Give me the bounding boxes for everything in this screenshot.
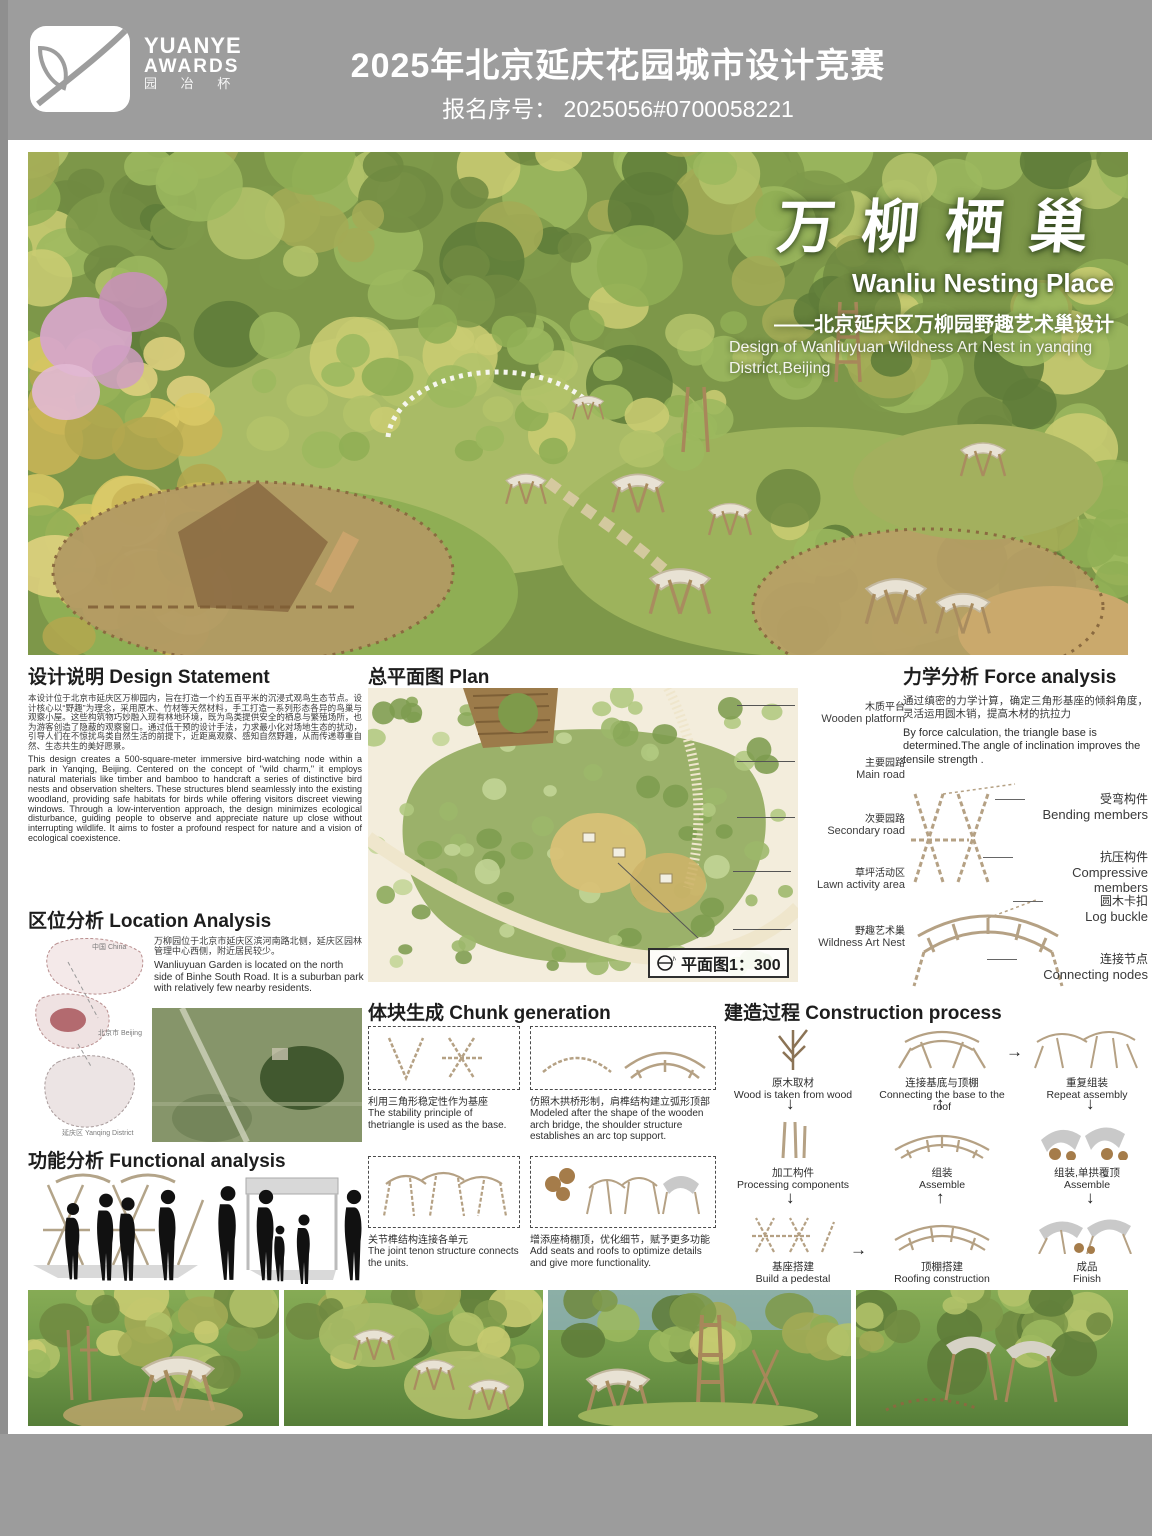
- gray-roof-figure: [1027, 1120, 1147, 1160]
- arch-panel-figure: [887, 1120, 997, 1160]
- arrow-down-icon: ↓: [786, 1094, 795, 1114]
- construction-heading: 建造过程 Construction process: [724, 998, 1152, 1025]
- functional-heading: 功能分析 Functional analysis: [28, 1146, 362, 1173]
- plan-scale-box: N 平面图1：300: [648, 948, 789, 978]
- location-heading: 区位分析 Location Analysis: [28, 906, 362, 933]
- force-heading: 力学分析 Force analysis: [903, 662, 1148, 689]
- arrow-down-icon: ↓: [786, 1188, 795, 1208]
- construction-en: Finish: [1022, 1274, 1152, 1286]
- construction-zh: 组装: [872, 1165, 1012, 1180]
- joint-units-diagram: [374, 1162, 514, 1222]
- people-silhouettes: [65, 1186, 361, 1284]
- construction-en: Roofing construction: [872, 1274, 1012, 1286]
- chunk-step-4: 增添座椅棚顶，优化细节，赋予更多功能 Add seats and roofs t…: [530, 1156, 716, 1269]
- construction-step-assemble: 组装 Assemble: [872, 1120, 1012, 1192]
- construction-zh: 加工构件: [724, 1165, 862, 1180]
- plan-label-secondary-road: 次要园路 Secondary road: [799, 810, 905, 837]
- force-analysis-section: 力学分析 Force analysis 通过缜密的力学计算，确定三角形基座的倾斜…: [903, 662, 1148, 998]
- construction-zh: 重复组装: [1022, 1075, 1152, 1090]
- plan-label-zh: 主要园路: [799, 754, 905, 769]
- force-label-en: Compressive members: [1018, 865, 1148, 895]
- render-photo-3: [548, 1290, 851, 1426]
- logo-line2: AWARDS: [144, 57, 242, 77]
- hero-subtitle-en: Design of Wanliuyuan Wildness Art Nest i…: [729, 338, 1114, 380]
- plan-label-main-road: 主要园路 Main road: [799, 754, 905, 781]
- competition-title: 2025年北京延庆花园城市设计竞赛: [268, 38, 968, 87]
- map-label-yanqing: 延庆区 Yanqing District: [62, 1128, 133, 1138]
- location-en: Wanliuyuan Garden is located on the nort…: [154, 960, 364, 995]
- construction-process-section: 建造过程 Construction process 原木取材 Wood is t…: [724, 998, 1152, 1290]
- svg-text:N: N: [673, 957, 676, 963]
- poster-page: { "header": { "logo": { "line1": "YUANYE…: [0, 0, 1152, 1536]
- plan-label-zh: 次要园路: [799, 810, 905, 825]
- yuanye-awards-logo: [30, 26, 130, 112]
- force-label-en: Bending members: [1030, 807, 1148, 822]
- arch-bridge-diagram: [537, 1032, 709, 1084]
- finished-tent-figure: [1027, 1214, 1147, 1254]
- plan-label-zh: 草坪活动区: [795, 864, 905, 879]
- triangle-base-diagram: [374, 1032, 514, 1084]
- construction-step-roofing: 顶棚搭建 Roofing construction: [872, 1214, 1012, 1286]
- map-label-beijing: 北京市 Beijing: [98, 1028, 142, 1038]
- force-en: By force calculation, the triangle base …: [903, 727, 1148, 767]
- satellite-image: [152, 1008, 362, 1142]
- arrow-up-icon: ↑: [936, 1094, 945, 1114]
- functional-analysis-section: 功能分析 Functional analysis: [28, 1146, 362, 1292]
- plan-label-lawn-area: 草坪活动区 Lawn activity area: [795, 864, 905, 891]
- hero-aerial-render: 万柳栖巢 Wanliu Nesting Place ——北京延庆区万柳园野趣艺术…: [28, 152, 1128, 655]
- arrow-right-icon: →: [1006, 1042, 1023, 1062]
- chunk-step-1: 利用三角形稳定性作为基座 The stability principle of …: [368, 1026, 520, 1131]
- force-label-en: Connecting nodes: [1022, 967, 1148, 982]
- plan-scale-text: 平面图1：300: [681, 951, 781, 975]
- chunk-en: Modeled after the shape of the wooden ar…: [530, 1108, 716, 1143]
- construction-zh: 顶棚搭建: [872, 1259, 1012, 1274]
- construction-step-canopy: 组装,单拱覆顶 Assemble: [1022, 1120, 1152, 1192]
- construction-zh: 基座搭建: [724, 1259, 862, 1274]
- render-photo-4: [856, 1290, 1128, 1426]
- force-label-log-buckle: 圆木卡扣 Log buckle: [1048, 892, 1148, 924]
- double-tent-figure: [1027, 1024, 1147, 1070]
- force-label-connecting: 连接节点 Connecting nodes: [1022, 950, 1148, 982]
- force-label-bending: 受弯构件 Bending members: [1030, 790, 1148, 822]
- trestle-figure: [748, 1214, 838, 1254]
- chunk-zh: 仿照木拱桥形制，肩榫结构建立弧形顶部: [530, 1093, 716, 1108]
- render-photo-2: [284, 1290, 543, 1426]
- chunk-heading: 体块生成 Chunk generation: [368, 998, 716, 1025]
- left-edge-strip: [0, 0, 8, 1536]
- chunk-en: The joint tenon structure connects the u…: [368, 1246, 520, 1269]
- design-statement-section: 设计说明 Design Statement 本设计位于北京市延庆区万柳园内，旨在…: [28, 662, 362, 844]
- chunk-zh: 关节榫结构连接各单元: [368, 1231, 520, 1246]
- construction-step-repeat: 重复组装 Repeat assembly: [1022, 1024, 1152, 1102]
- force-label-zh: 连接节点: [1022, 950, 1148, 967]
- force-label-en: Log buckle: [1048, 909, 1148, 924]
- registration-number: 报名序号： 2025056#0700058221: [268, 90, 968, 124]
- plan-label-en: Secondary road: [799, 825, 905, 837]
- plan-section: 总平面图 Plan 木质平台 Wooden platform 主要园路 Main…: [368, 662, 908, 992]
- left-play-circle: [53, 482, 453, 655]
- arrow-down-icon: ↓: [1086, 1094, 1095, 1114]
- chunk-step-3: 关节榫结构连接各单元 The joint tenon structure con…: [368, 1156, 520, 1269]
- force-zh: 通过缜密的力学计算，确定三角形基座的倾斜角度，灵活运用圆木销，提高木材的抗拉力: [903, 695, 1148, 721]
- north-arrow-icon: N: [656, 953, 676, 973]
- logo-line1: YUANYE: [144, 34, 242, 57]
- force-label-compressive: 抗压构件 Compressive members: [1018, 848, 1148, 895]
- map-label-china: 中国 China: [92, 942, 126, 952]
- branch-figure: [763, 1024, 823, 1070]
- functional-diagram: [28, 1170, 362, 1290]
- hero-title-en: Wanliu Nesting Place: [852, 268, 1114, 299]
- construction-zh: 成品: [1022, 1259, 1152, 1274]
- plan-label-en: Wildness Art Nest: [795, 937, 905, 949]
- arrow-down-icon: ↓: [1086, 1188, 1095, 1208]
- chunk-zh: 利用三角形稳定性作为基座: [368, 1093, 520, 1108]
- logo-wordmark: YUANYE AWARDS 园 冶 杯: [144, 34, 242, 91]
- plan-label-zh: 木质平台: [799, 698, 905, 713]
- chunk-step-2: 仿照木拱桥形制，肩榫结构建立弧形顶部 Modeled after the sha…: [530, 1026, 716, 1143]
- plan-label-en: Lawn activity area: [795, 879, 905, 891]
- plan-label-art-nest: 野趣艺术巢 Wildness Art Nest: [795, 922, 905, 949]
- plan-label-wooden-platform: 木质平台 Wooden platform: [799, 698, 905, 725]
- construction-zh: 组装,单拱覆顶: [1022, 1165, 1152, 1180]
- design-statement-heading: 设计说明 Design Statement: [28, 662, 362, 689]
- footer-band: [0, 1434, 1152, 1536]
- design-statement-zh: 本设计位于北京市延庆区万柳园内，旨在打造一个约五百平米的沉浸式观鸟生态节点。设计…: [28, 694, 362, 751]
- header-banner: YUANYE AWARDS 园 冶 杯 2025年北京延庆花园城市设计竞赛 报名…: [8, 0, 1152, 140]
- chunk-generation-section: 体块生成 Chunk generation 利用三角形稳定性作为基座 The s…: [368, 998, 716, 1288]
- plan-label-en: Wooden platform: [799, 713, 905, 725]
- construction-step-wood: 原木取材 Wood is taken from wood: [724, 1024, 862, 1102]
- arrow-up-icon: ↑: [936, 1188, 945, 1208]
- seats-roofs-diagram: [537, 1162, 709, 1222]
- chunk-en: The stability principle of thetriangle i…: [368, 1108, 520, 1131]
- sticks-figure: [763, 1120, 823, 1160]
- construction-step-finish: 成品 Finish: [1022, 1214, 1152, 1286]
- force-label-zh: 受弯构件: [1030, 790, 1148, 807]
- location-analysis-section: 区位分析 Location Analysis 中国 China 北京市 Beij…: [28, 906, 362, 1144]
- location-zh: 万柳园位于北京市延庆区滨河南路北侧，延庆区园林管理中心西侧，附近居民较少。: [154, 936, 362, 956]
- force-label-zh: 圆木卡扣: [1048, 892, 1148, 909]
- plan-drawing: [368, 688, 798, 982]
- construction-en: Build a pedestal: [724, 1274, 862, 1286]
- force-label-zh: 抗压构件: [1018, 848, 1148, 865]
- construction-step-processing: 加工构件 Processing components: [724, 1120, 862, 1192]
- plan-heading: 总平面图 Plan: [368, 662, 908, 689]
- render-photo-1: [28, 1290, 279, 1426]
- design-statement-en: This design creates a 500-square-meter i…: [28, 755, 362, 844]
- chunk-zh: 增添座椅棚顶，优化细节，赋予更多功能: [530, 1231, 716, 1246]
- arrow-right-icon: →: [850, 1240, 867, 1260]
- construction-zh: 原木取材: [724, 1075, 862, 1090]
- plan-label-zh: 野趣艺术巢: [795, 922, 905, 937]
- logo-line3: 园 冶 杯: [144, 77, 242, 91]
- logo-leaf-icon: [30, 26, 130, 112]
- construction-zh: 连接基底与顶棚: [872, 1075, 1012, 1090]
- construction-step-pedestal: 基座搭建 Build a pedestal: [724, 1214, 862, 1286]
- plan-label-en: Main road: [799, 769, 905, 781]
- tent-frame-figure: [887, 1024, 997, 1070]
- hero-title-zh: 万柳栖巢: [774, 180, 1117, 264]
- hero-subtitle-zh: ——北京延庆区万柳园野趣艺术巢设计: [774, 308, 1114, 337]
- chunk-en: Add seats and roofs to optimize details …: [530, 1246, 716, 1269]
- roof-panel-figure: [887, 1214, 997, 1254]
